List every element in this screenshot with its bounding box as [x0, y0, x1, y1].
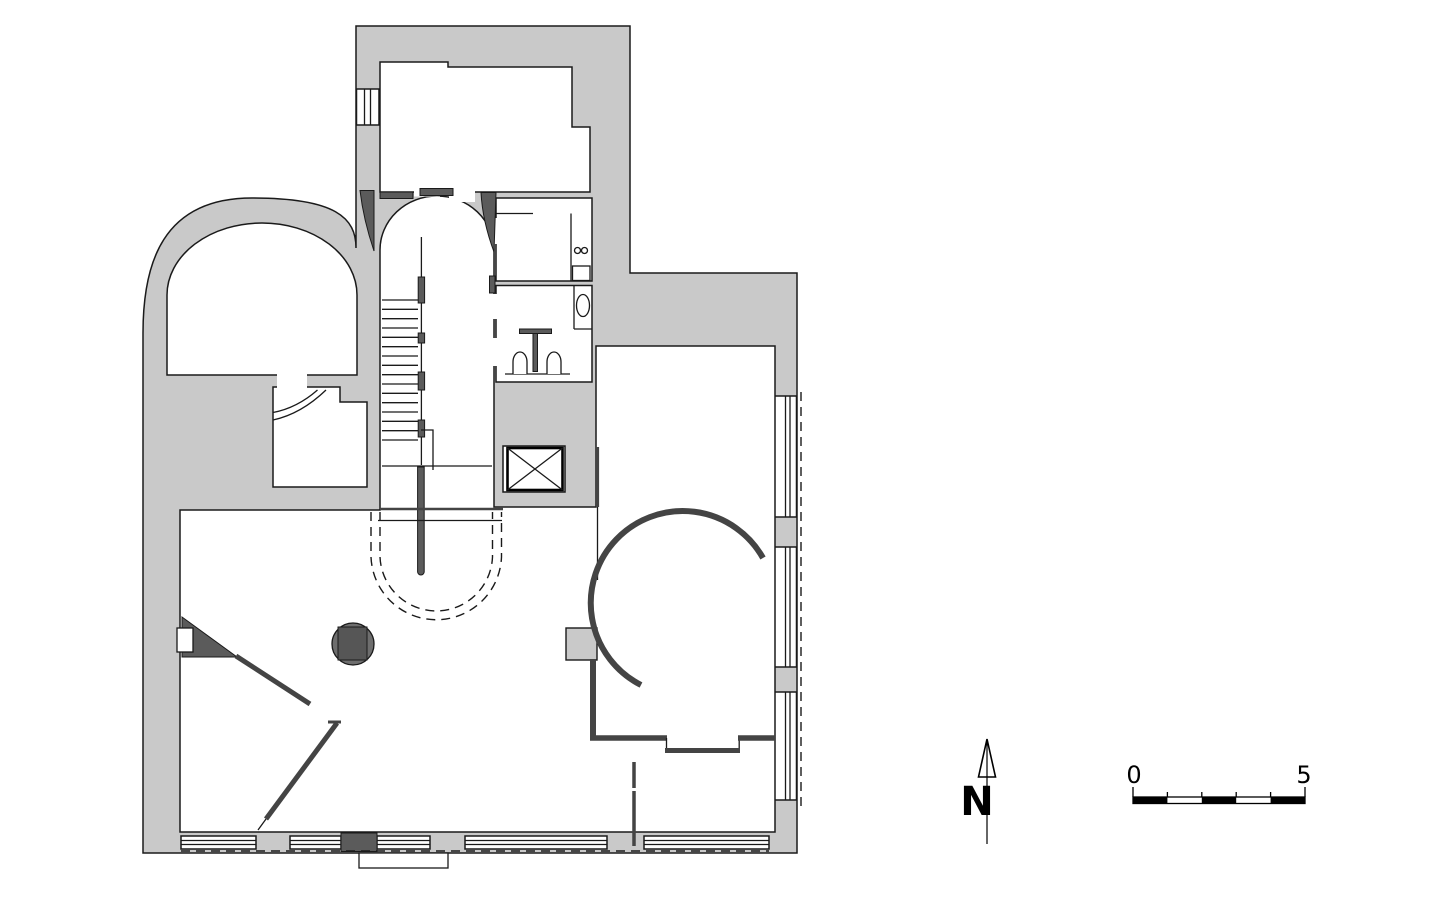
bathroom-fixtures	[496, 214, 592, 375]
bathroom-door-opening	[490, 294, 498, 319]
wall-niche	[177, 628, 193, 652]
building-walls	[143, 26, 797, 853]
sink-bowl-icon	[575, 248, 581, 254]
stair-wall-segment	[418, 420, 424, 437]
scale-bar-segment	[1271, 797, 1305, 804]
curved-wall	[591, 511, 763, 685]
floor-plan-page: N 0 5	[0, 0, 1440, 900]
north-label: N	[960, 779, 993, 825]
sink-counter	[573, 266, 591, 281]
square-pier	[338, 627, 367, 660]
duct-wall	[496, 214, 571, 282]
overhead-outline-inner	[380, 512, 493, 611]
right-room-elements	[566, 447, 775, 846]
north-arrow: N	[960, 739, 995, 844]
overhead-outline-outer	[371, 512, 502, 620]
stair-wall-segment	[418, 372, 424, 390]
window-glazing	[786, 396, 791, 800]
open-door-leaf	[420, 189, 453, 196]
staircase	[382, 237, 433, 575]
bathroom-door-opening	[490, 338, 498, 366]
overhead-oval-dashed	[371, 466, 503, 620]
door-swing-arc	[273, 390, 326, 420]
angled-wall-2	[266, 723, 337, 819]
toilet-icon	[577, 295, 590, 317]
stall-partition-stem	[533, 334, 538, 372]
apse-door-opening	[277, 373, 307, 389]
urinal-icon	[513, 352, 527, 374]
stair-treads	[382, 300, 418, 440]
stall-partition	[520, 329, 552, 334]
scale-zero-label: 0	[1126, 761, 1141, 789]
urinal-icon	[547, 352, 561, 374]
entry-step	[359, 853, 448, 868]
dark-window-pier	[341, 833, 377, 852]
door-swing-arc	[273, 390, 318, 413]
window-glazing	[365, 89, 371, 125]
hall-elements	[236, 623, 374, 830]
elevator	[508, 448, 563, 490]
wall-end-cap	[490, 276, 496, 293]
elevator-x-icon	[508, 448, 563, 490]
gray-column	[566, 628, 597, 660]
stair-wall-segment	[418, 277, 424, 303]
apse-door-swing	[273, 390, 326, 420]
scale-bar: 0 5	[1126, 761, 1311, 804]
scale-five-label: 5	[1296, 761, 1311, 789]
door-sill	[380, 192, 413, 199]
scale-bar-ticks	[1133, 787, 1305, 797]
angled-wall	[236, 656, 310, 704]
stair-wall-segment	[418, 333, 424, 343]
scale-bar-segment	[1133, 797, 1167, 804]
sink-bowl-icon	[582, 248, 588, 254]
angled-wall-tip	[258, 819, 266, 830]
floor-plan-canvas: N 0 5	[0, 0, 1440, 900]
scale-bar-segment	[1202, 797, 1236, 804]
curved-door-leaf-right	[481, 193, 496, 253]
perimeter-dashed	[181, 392, 801, 851]
